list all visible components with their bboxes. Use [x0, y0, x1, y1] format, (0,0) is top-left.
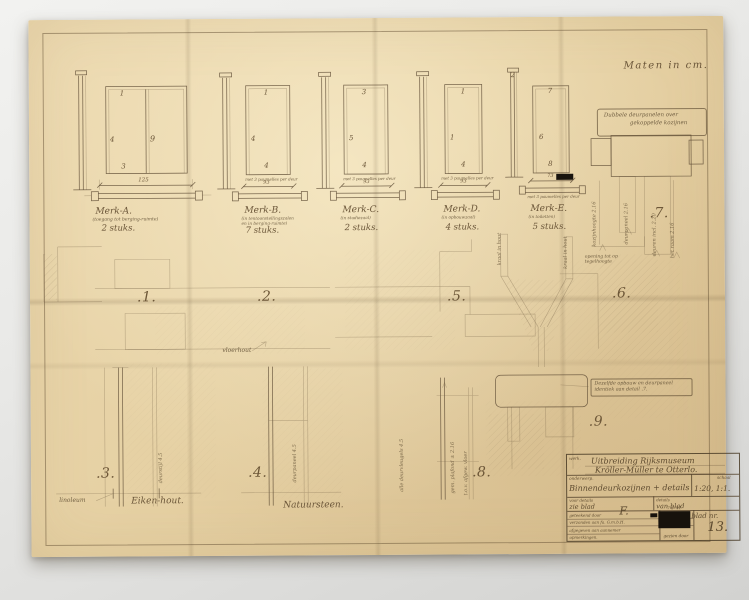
- door-a-mark: Merk-A.: [95, 206, 132, 217]
- v-annotation-deuren: deuren incl. 2.20: [651, 213, 657, 256]
- label-eikenhout: Eiken-hout.: [131, 496, 184, 507]
- schaal-value: 1:20, 1:1.: [694, 484, 730, 493]
- note-detail-9-box: Dezelfde opbouw en deurpaneel identiek a…: [590, 378, 692, 397]
- sheet-rotation-wrapper: Maten in cm. 1 4 9 3 125 Merk-A. (toegan…: [0, 0, 749, 600]
- door-c-count: 2 stuks.: [345, 224, 379, 234]
- door-e-width-dim: 73: [547, 174, 553, 180]
- label-vloerhout: vloerhout: [222, 347, 251, 354]
- door-e-count: 5 stuks.: [533, 223, 567, 233]
- redaction-dash: [650, 513, 657, 517]
- door-e-mark: Merk-E.: [530, 204, 567, 215]
- door-b-width-dim: 93: [263, 181, 269, 187]
- door-b-count: 7 stuks.: [246, 227, 280, 237]
- detail-label-2: .2.: [257, 289, 276, 305]
- werk-line2: Kröller-Müller te Otterlo.: [595, 465, 697, 475]
- v-annotation-deurpaneel-2: deurpaneel 4.5: [292, 444, 298, 482]
- title-block-rule: [653, 496, 654, 510]
- door-b-ref-bottom: 4: [264, 162, 269, 170]
- door-c-ref-mid: 5: [349, 134, 354, 142]
- door-c-ref-top: 3: [362, 88, 367, 96]
- zie-blad-value: zie blad: [569, 503, 595, 511]
- blad-nr-value: 13.: [707, 520, 728, 535]
- v-annotation-deurvleugels: alle deurvleugels 4.5: [399, 439, 405, 492]
- door-c-subtitle: (in studiezaal): [340, 215, 370, 220]
- title-block-rule: [691, 474, 692, 496]
- detail-label-6: .6.: [612, 285, 631, 301]
- detail-label-1: .1.: [137, 289, 156, 305]
- v-annotation-deurpaneel: deurpaneel 2.16: [623, 203, 629, 244]
- row-geteekend: geteekend door: [569, 512, 601, 517]
- door-e-subtitle: (in toiletten): [528, 214, 555, 219]
- row-afgegeven: afgegeven aan aannemer: [569, 527, 620, 532]
- door-e-ref-mid: 6: [539, 133, 544, 141]
- door-a-ref-bottom: 3: [121, 163, 126, 171]
- detail-label-3: .3.: [96, 466, 115, 482]
- door-c-mark: Merk-C.: [342, 205, 379, 216]
- door-a-width-dim: 125: [138, 177, 149, 183]
- door-d-ref-mid: 1: [450, 134, 455, 142]
- detail-7-section: [591, 135, 704, 259]
- door-e-caption: met 3 paumelles per deur: [527, 195, 579, 200]
- door-d-width-dim: 93: [460, 179, 466, 185]
- door-e-ref-above: 2: [511, 71, 516, 79]
- v-annotation-deurstijl: deurstijl 4.5: [158, 453, 164, 484]
- note-tile-height: opening tot op tegelhoogte: [585, 254, 643, 265]
- title-block: werk. Uitbreiding Rijksmuseum Kröller-Mü…: [566, 453, 741, 542]
- label-linoleum: linoleum: [59, 497, 85, 504]
- v-annotation-kozijnhoogte: kozijnhoogte 2.16: [591, 201, 597, 246]
- detail-label-4: .4.: [248, 465, 267, 481]
- redaction-box: [658, 511, 690, 528]
- photographed-drawing-sheet: Maten in cm. 1 4 9 3 125 Merk-A. (toegan…: [0, 0, 749, 600]
- door-e-ref-bottom: 8: [548, 160, 553, 168]
- door-e-elevation: [505, 68, 586, 194]
- door-d-caption: met 3 paumelles per deur: [441, 176, 493, 181]
- detail-8-section: [436, 377, 479, 499]
- door-c-width-dim: 93: [363, 180, 369, 186]
- note-detail-7-box: Dubbele deurpanelen over gekoppelde kozi…: [597, 108, 707, 137]
- door-d-ref-top: 1: [461, 87, 466, 95]
- door-d-subtitle: (in opbouwzaal): [441, 214, 475, 219]
- date-scribble: 7-8-'41: [667, 505, 681, 510]
- door-d-count: 4 stuks.: [446, 223, 480, 233]
- detail-label-8: .8.: [472, 464, 491, 480]
- note-detail-9-line2: identiek aan detail .7.: [595, 387, 648, 393]
- row-opmerkingen: opmerkingen.: [569, 534, 597, 539]
- door-a-subtitle: (toegang tot berging-ruimte): [92, 217, 158, 223]
- door-d-mark: Merk-D.: [443, 204, 480, 215]
- detail-label-9: .9.: [589, 414, 608, 430]
- signature: F.: [619, 504, 629, 517]
- door-b-caption: met 3 paumelles per deur: [245, 177, 297, 182]
- v-annotation-vloer: t.o.v. afgew. vloer: [463, 451, 469, 495]
- v-annotation-kraal-2: kraal in hout: [563, 236, 569, 268]
- note-detail-7-line2: gekoppelde kozijnen: [630, 120, 687, 127]
- label-natuursteen: Natuursteen.: [283, 500, 343, 511]
- detail-label-5: .5.: [447, 288, 466, 304]
- gezien-door-label: gezien door: [663, 533, 688, 538]
- door-b-ref-top: 1: [264, 89, 269, 97]
- v-annotation-raam: het raam 2.16: [670, 223, 676, 259]
- door-b-mark: Merk-B.: [244, 206, 281, 217]
- werk-label: werk.: [569, 456, 581, 461]
- door-a-count: 2 stuks.: [102, 224, 136, 234]
- onderwerp-value: Binnendeurkozijnen + details: [569, 483, 689, 493]
- blad-nr-label: blad nr.: [691, 512, 718, 520]
- door-a-ref-center: 9: [150, 134, 155, 143]
- door-a-ref-mid: 4: [110, 136, 115, 144]
- onderwerp-label: onderwerp.: [569, 476, 593, 481]
- door-d-ref-bottom: 4: [461, 160, 466, 168]
- note-detail-7-line1: Dubbele deurpanelen over: [604, 112, 678, 119]
- v-annotation-kraal-1: kraal in hout: [497, 233, 503, 265]
- door-a-ref-top: 1: [120, 90, 125, 98]
- schaal-label: schaal: [717, 475, 731, 480]
- door-e-ref-top: 7: [548, 87, 553, 95]
- units-note: Maten in cm.: [624, 60, 709, 72]
- row-verzonden: verzonden aan fa. G.m.b.H.: [569, 519, 624, 524]
- v-annotation-plafond: gem. plafond ± 2.16: [450, 442, 456, 494]
- door-b-ref-mid: 4: [251, 135, 256, 143]
- door-c-ref-bottom: 4: [362, 161, 367, 169]
